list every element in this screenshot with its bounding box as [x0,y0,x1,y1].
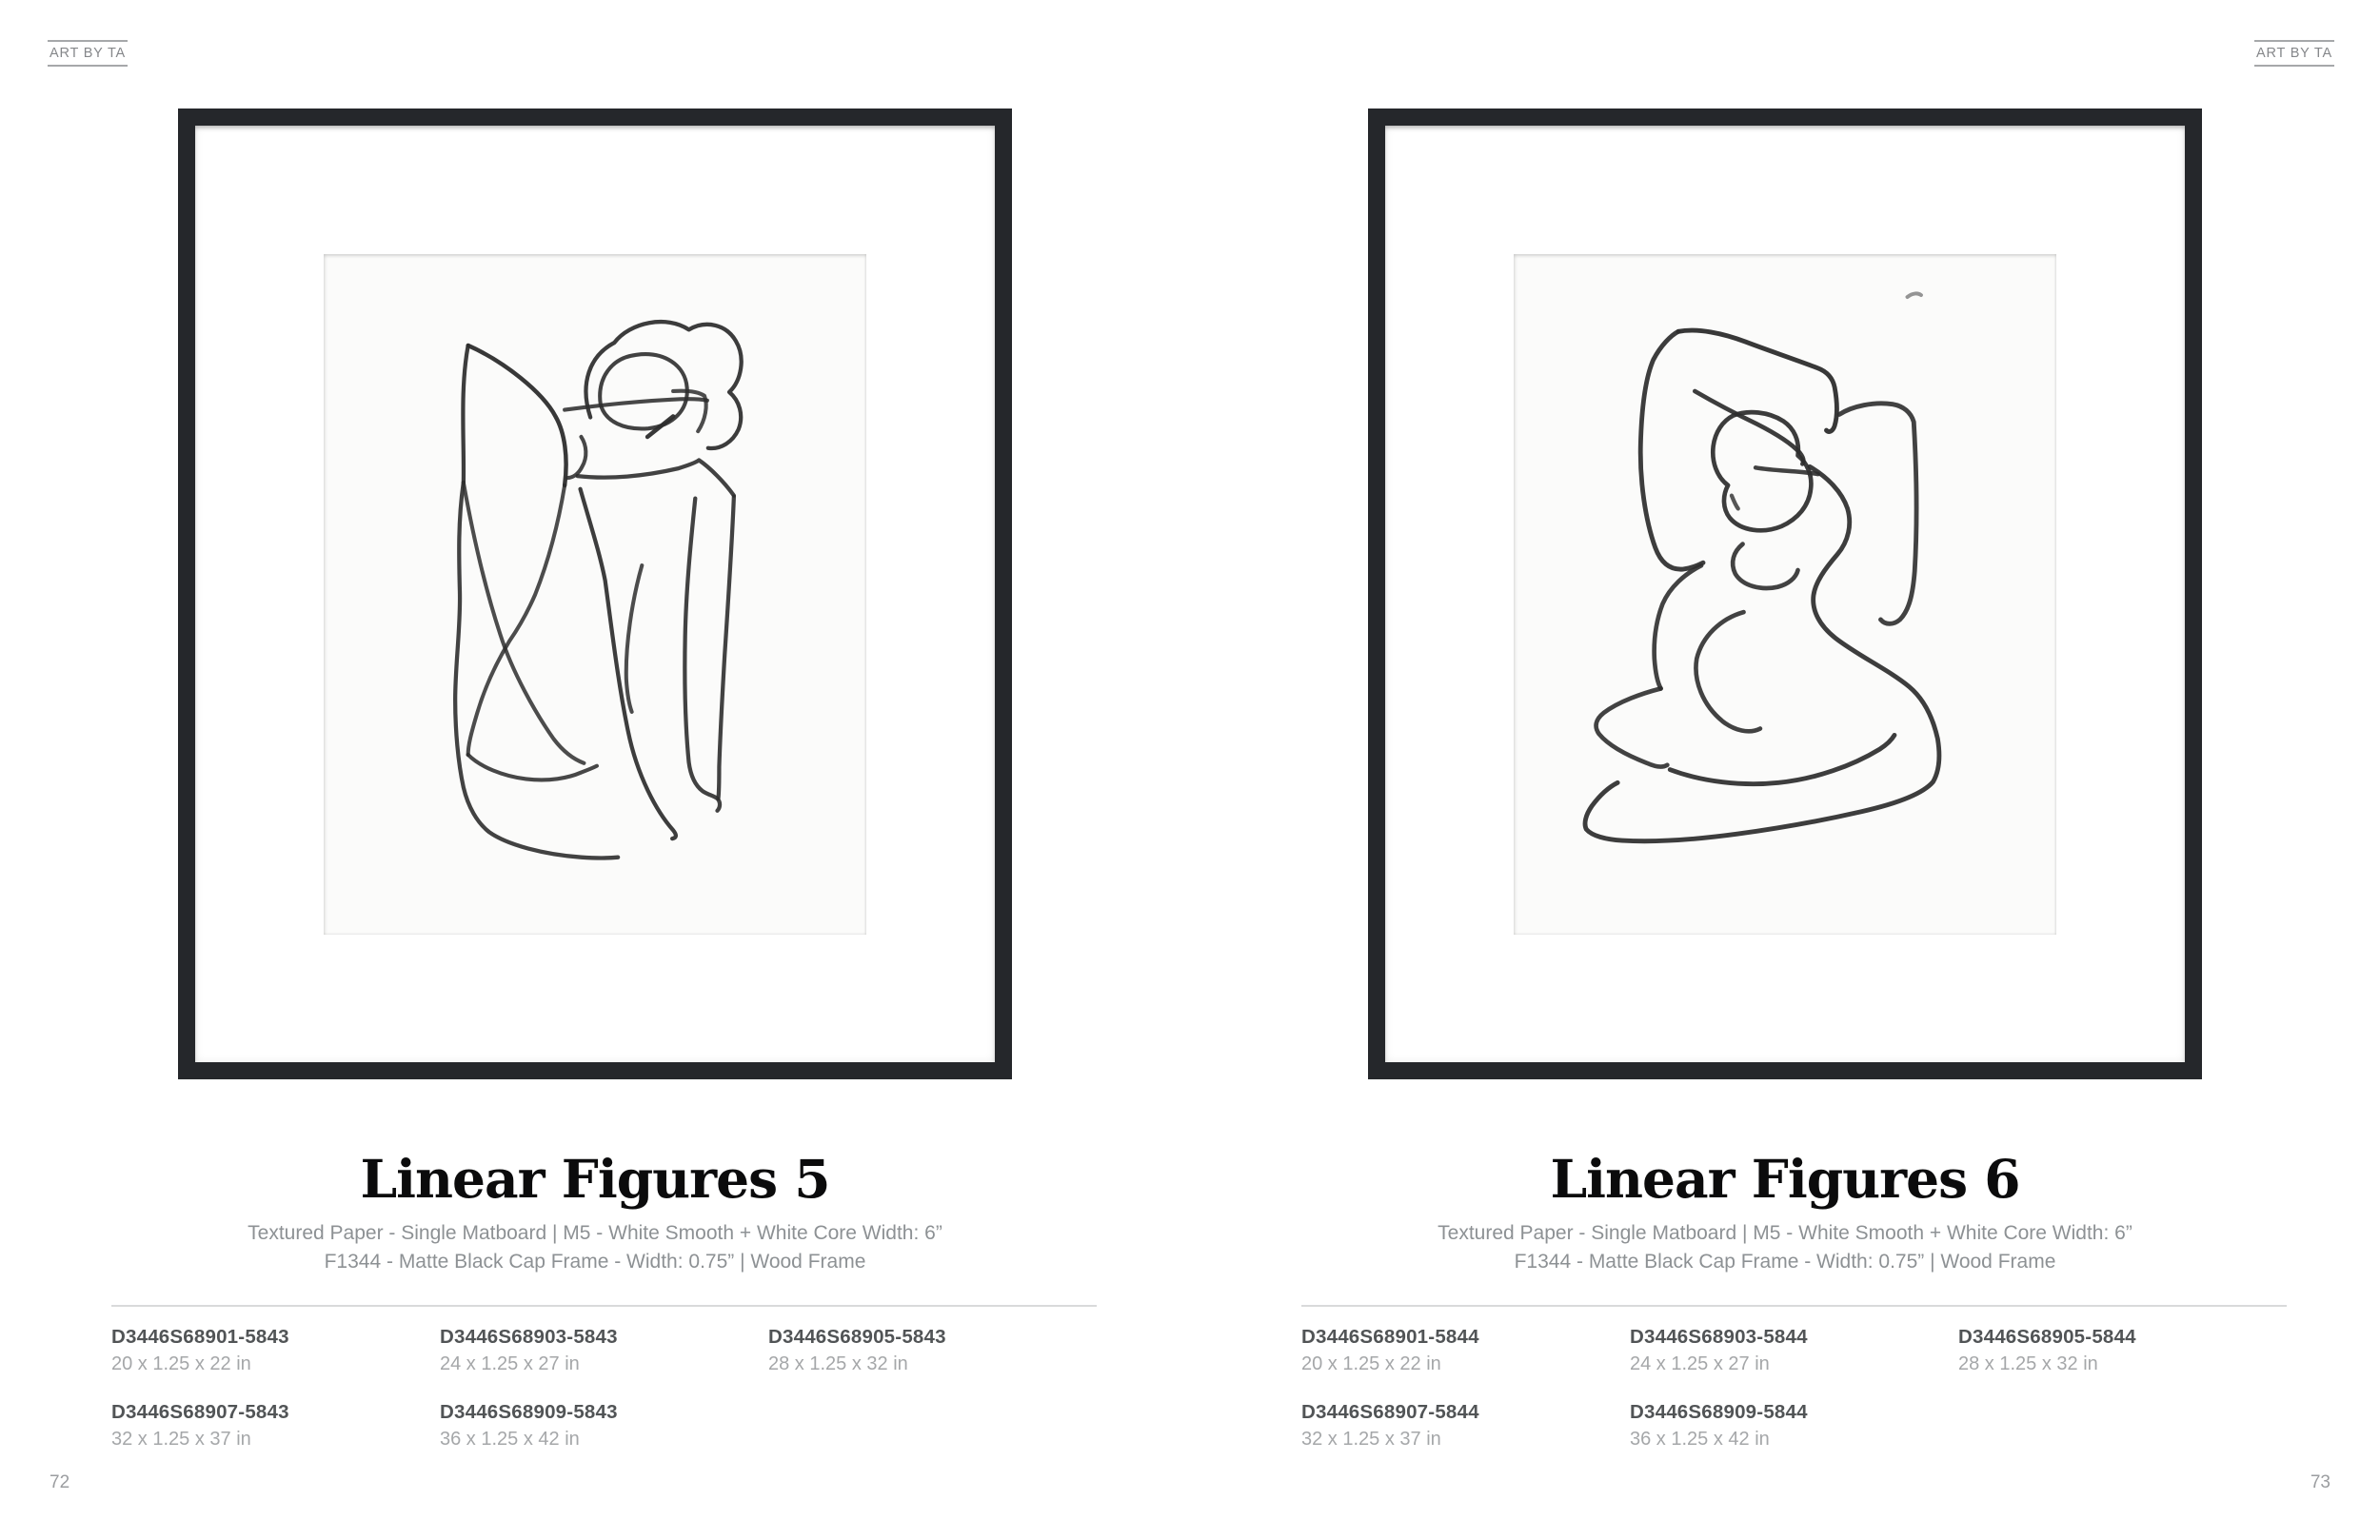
art-title: Linear Figures 5 [0,1148,1190,1210]
framed-artwork[interactable] [1368,109,2202,1079]
sku-code: D3446S68907-5843 [111,1401,440,1424]
sku-size: 36 x 1.25 x 42 in [1630,1429,1958,1451]
spec-line-1: Textured Paper - Single Matboard | M5 - … [1190,1219,2380,1248]
spec-line-2: F1344 - Matte Black Cap Frame - Width: 0… [0,1248,1190,1276]
sku-size: 32 x 1.25 x 37 in [111,1429,440,1451]
page-73: ART BY TA [1190,0,2380,1540]
artwork-linear-figures-5 [324,254,866,935]
artwork-linear-figures-6 [1514,254,2056,935]
sku-size: 24 x 1.25 x 27 in [440,1353,768,1375]
art-title: Linear Figures 6 [1190,1148,2380,1210]
art-specs: Textured Paper - Single Matboard | M5 - … [1190,1219,2380,1276]
sku-item: D3446S68903-5843 24 x 1.25 x 27 in [440,1326,768,1375]
page-number: 72 [50,1472,69,1493]
matboard [195,126,995,1062]
divider-line [1301,1305,2287,1307]
sku-size: 24 x 1.25 x 27 in [1630,1353,1958,1375]
sku-item: D3446S68909-5844 36 x 1.25 x 42 in [1630,1401,1958,1451]
page-72: ART BY TA [0,0,1190,1540]
brand-link[interactable]: ART BY TA [48,40,128,67]
brand-link[interactable]: ART BY TA [2254,40,2334,67]
sku-code: D3446S68903-5844 [1630,1326,1958,1349]
art-opening [1514,254,2056,935]
art-specs: Textured Paper - Single Matboard | M5 - … [0,1219,1190,1276]
art-opening [324,254,866,935]
sku-table: D3446S68901-5844 20 x 1.25 x 22 in D3446… [1301,1326,2287,1451]
sku-size: 32 x 1.25 x 37 in [1301,1429,1630,1451]
sku-size: 20 x 1.25 x 22 in [1301,1353,1630,1375]
sku-item: D3446S68907-5844 32 x 1.25 x 37 in [1301,1401,1630,1451]
sku-item-empty [768,1401,1097,1451]
sku-item: D3446S68909-5843 36 x 1.25 x 42 in [440,1401,768,1451]
sku-item-empty [1958,1401,2287,1451]
divider-line [111,1305,1097,1307]
sku-item: D3446S68901-5844 20 x 1.25 x 22 in [1301,1326,1630,1375]
sku-code: D3446S68905-5843 [768,1326,1097,1349]
sku-item: D3446S68903-5844 24 x 1.25 x 27 in [1630,1326,1958,1375]
sku-size: 20 x 1.25 x 22 in [111,1353,440,1375]
sku-table: D3446S68901-5843 20 x 1.25 x 22 in D3446… [111,1326,1097,1451]
sku-code: D3446S68907-5844 [1301,1401,1630,1424]
page-number: 73 [2311,1472,2330,1493]
sku-code: D3446S68905-5844 [1958,1326,2287,1349]
catalog-spread: ART BY TA [0,0,2380,1540]
framed-artwork[interactable] [178,109,1012,1079]
sku-size: 36 x 1.25 x 42 in [440,1429,768,1451]
sku-size: 28 x 1.25 x 32 in [1958,1353,2287,1375]
sku-code: D3446S68909-5843 [440,1401,768,1424]
sku-code: D3446S68901-5844 [1301,1326,1630,1349]
spec-line-2: F1344 - Matte Black Cap Frame - Width: 0… [1190,1248,2380,1276]
sku-code: D3446S68903-5843 [440,1326,768,1349]
sku-item: D3446S68907-5843 32 x 1.25 x 37 in [111,1401,440,1451]
matboard [1385,126,2185,1062]
spec-line-1: Textured Paper - Single Matboard | M5 - … [0,1219,1190,1248]
sku-item: D3446S68905-5844 28 x 1.25 x 32 in [1958,1326,2287,1375]
sku-code: D3446S68901-5843 [111,1326,440,1349]
sku-item: D3446S68905-5843 28 x 1.25 x 32 in [768,1326,1097,1375]
sku-code: D3446S68909-5844 [1630,1401,1958,1424]
sku-size: 28 x 1.25 x 32 in [768,1353,1097,1375]
sku-item: D3446S68901-5843 20 x 1.25 x 22 in [111,1326,440,1375]
